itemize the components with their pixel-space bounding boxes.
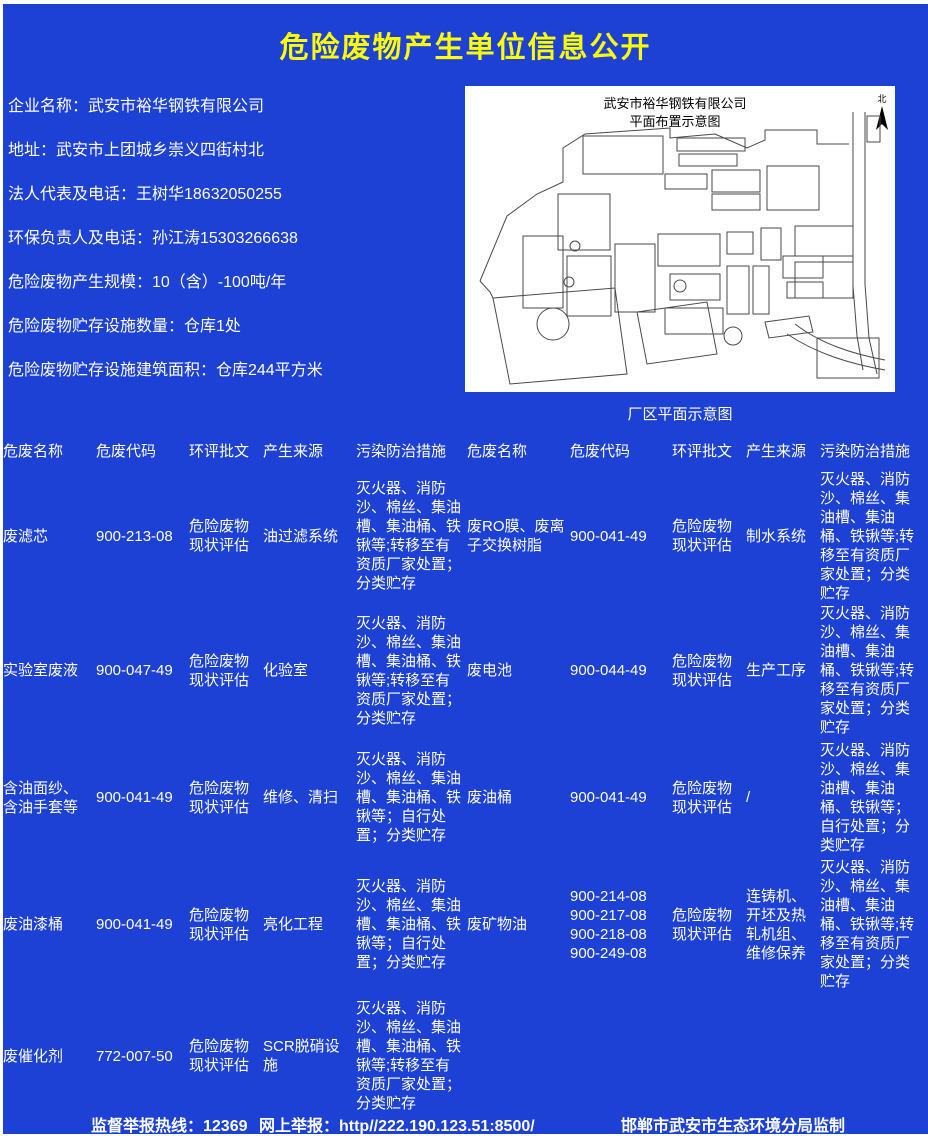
eia-approval: 危险废物现状评估 bbox=[672, 906, 746, 944]
factory-plan-map: 武安市裕华钢铁有限公司 平面布置示意图 北 bbox=[465, 86, 895, 392]
header-source-right: 产生来源 bbox=[746, 442, 820, 461]
storage-facility-count: 危险废物贮存设施数量：仓库1处 bbox=[8, 316, 463, 360]
control-measures: 灭火器、消防沙、棉丝、集油槽、集油桶、铁锹等；自行处置；分类贮存 bbox=[820, 741, 928, 855]
table-row: 废催化剂 772-007-50 危险废物现状评估 SCR脱硝设施 灭火器、消防沙… bbox=[3, 991, 928, 1121]
table-row: 实验室废液 900-047-49 危险废物现状评估 化验室 灭火器、消防沙、棉丝… bbox=[3, 604, 928, 737]
table-row: 含油面纱、含油手套等 900-041-49 危险废物现状评估 维修、清扫 灭火器… bbox=[3, 737, 928, 858]
eia-approval: 危险废物现状评估 bbox=[189, 517, 263, 555]
header-waste-name-left: 危废名称 bbox=[3, 442, 96, 461]
company-info-list: 企业名称：武安市裕华钢铁有限公司 地址：武安市上团城乡崇义四街村北 法人代表及电… bbox=[8, 96, 463, 404]
waste-production-scale: 危险废物产生规模：10（含）-100吨/年 bbox=[8, 272, 463, 316]
page-title: 危险废物产生单位信息公开 bbox=[3, 24, 928, 66]
storage-facility-area: 危险废物贮存设施建筑面积：仓库244平方米 bbox=[8, 360, 463, 404]
waste-name: 废电池 bbox=[467, 661, 570, 680]
eia-approval: 危险废物现状评估 bbox=[189, 906, 263, 944]
eia-approval: 危险废物现状评估 bbox=[189, 779, 263, 817]
waste-code: 900-041-49 bbox=[570, 788, 672, 807]
waste-source: 维修、清扫 bbox=[263, 788, 356, 807]
hazardous-waste-table: 危废名称 危废代码 环评批文 产生来源 污染防治措施 危废名称 危废代码 环评批… bbox=[3, 442, 928, 1121]
notice-board: 危险废物产生单位信息公开 企业名称：武安市裕华钢铁有限公司 地址：武安市上团城乡… bbox=[3, 4, 928, 1134]
table-row: 废滤芯 900-213-08 危险废物现状评估 油过滤系统 灭火器、消防沙、棉丝… bbox=[3, 468, 928, 604]
factory-map-svg: 武安市裕华钢铁有限公司 平面布置示意图 北 bbox=[465, 86, 895, 392]
waste-code: 900-044-49 bbox=[570, 661, 672, 680]
waste-source: 化验室 bbox=[263, 661, 356, 680]
waste-source: 油过滤系统 bbox=[263, 527, 356, 546]
waste-name: 含油面纱、含油手套等 bbox=[3, 779, 96, 817]
waste-name: 实验室废液 bbox=[3, 661, 96, 680]
waste-name: 废油漆桶 bbox=[3, 915, 96, 934]
eia-approval: 危险废物现状评估 bbox=[672, 517, 746, 555]
header-waste-code-right: 危废代码 bbox=[570, 442, 672, 461]
report-hotline: 监督举报热线：12369 bbox=[91, 1112, 248, 1136]
map-caption: 厂区平面示意图 bbox=[465, 403, 895, 424]
online-report-url: 网上举报：http//222.190.123.51:8500/ bbox=[259, 1112, 535, 1136]
env-manager-phone: 环保负责人及电话：孙江涛15303266638 bbox=[8, 228, 463, 272]
header-measures-right: 污染防治措施 bbox=[820, 442, 928, 461]
footer: 监督举报热线：12369 网上举报：http//222.190.123.51:8… bbox=[3, 1112, 928, 1134]
control-measures: 灭火器、消防沙、棉丝、集油槽、集油桶、铁锹等;转移至有资质厂家处置；分类贮存 bbox=[356, 614, 467, 728]
control-measures: 灭火器、消防沙、棉丝、集油槽、集油桶、铁锹等;转移至有资质厂家处置；分类贮存 bbox=[820, 470, 928, 603]
supervising-agency: 邯郸市武安市生态环境分局监制 bbox=[621, 1112, 845, 1136]
waste-source: 制水系统 bbox=[746, 527, 820, 546]
header-eia-approval-left: 环评批文 bbox=[189, 442, 263, 461]
eia-approval: 危险废物现状评估 bbox=[189, 652, 263, 690]
waste-code: 900-047-49 bbox=[96, 661, 189, 680]
waste-source: 连铸机、开坯及热轧机组、维修保养 bbox=[746, 887, 820, 963]
waste-source: 亮化工程 bbox=[263, 915, 356, 934]
company-address: 地址：武安市上团城乡崇义四街村北 bbox=[8, 140, 463, 184]
waste-code: 900-041-49 bbox=[570, 527, 672, 546]
waste-code: 900-041-49 bbox=[96, 915, 189, 934]
north-label: 北 bbox=[877, 94, 886, 104]
company-name: 企业名称：武安市裕华钢铁有限公司 bbox=[8, 96, 463, 140]
eia-approval: 危险废物现状评估 bbox=[672, 779, 746, 817]
waste-name: 废催化剂 bbox=[3, 1047, 96, 1066]
header-source-left: 产生来源 bbox=[263, 442, 356, 461]
waste-name: 废油桶 bbox=[467, 788, 570, 807]
control-measures: 灭火器、消防沙、棉丝、集油槽、集油桶、铁锹等；自行处置；分类贮存 bbox=[356, 750, 467, 845]
control-measures: 灭火器、消防沙、棉丝、集油槽、集油桶、铁锹等;转移至有资质厂家处置；分类贮存 bbox=[356, 999, 467, 1113]
waste-code: 900-214-08 900-217-08 900-218-08 900-249… bbox=[570, 887, 672, 963]
header-measures-left: 污染防治措施 bbox=[356, 442, 467, 461]
map-title-line1: 武安市裕华钢铁有限公司 bbox=[603, 96, 746, 111]
waste-source: / bbox=[746, 788, 820, 807]
waste-code: 900-213-08 bbox=[96, 527, 189, 546]
map-title-line2: 平面布置示意图 bbox=[629, 114, 720, 129]
header-eia-approval-right: 环评批文 bbox=[672, 442, 746, 461]
legal-representative-phone: 法人代表及电话：王树华18632050255 bbox=[8, 184, 463, 228]
waste-name: 废滤芯 bbox=[3, 527, 96, 546]
waste-code: 900-041-49 bbox=[96, 788, 189, 807]
control-measures: 灭火器、消防沙、棉丝、集油槽、集油桶、铁锹等;转移至有资质厂家处置；分类贮存 bbox=[820, 858, 928, 991]
eia-approval: 危险废物现状评估 bbox=[189, 1037, 263, 1075]
waste-source: SCR脱硝设施 bbox=[263, 1037, 356, 1075]
waste-name: 废矿物油 bbox=[467, 915, 570, 934]
control-measures: 灭火器、消防沙、棉丝、集油槽、集油桶、铁锹等;转移至有资质厂家处置；分类贮存 bbox=[820, 604, 928, 737]
header-waste-code-left: 危废代码 bbox=[96, 442, 189, 461]
waste-name: 废RO膜、废离子交换树脂 bbox=[467, 517, 570, 555]
control-measures: 灭火器、消防沙、棉丝、集油槽、集油桶、铁锹等；自行处置；分类贮存 bbox=[356, 877, 467, 972]
waste-source: 生产工序 bbox=[746, 661, 820, 680]
table-row: 废油漆桶 900-041-49 危险废物现状评估 亮化工程 灭火器、消防沙、棉丝… bbox=[3, 858, 928, 991]
table-header-row: 危废名称 危废代码 环评批文 产生来源 污染防治措施 危废名称 危废代码 环评批… bbox=[3, 442, 928, 468]
waste-code: 772-007-50 bbox=[96, 1047, 189, 1066]
control-measures: 灭火器、消防沙、棉丝、集油槽、集油桶、铁锹等;转移至有资质厂家处置；分类贮存 bbox=[356, 479, 467, 593]
header-waste-name-right: 危废名称 bbox=[467, 442, 570, 461]
eia-approval: 危险废物现状评估 bbox=[672, 652, 746, 690]
